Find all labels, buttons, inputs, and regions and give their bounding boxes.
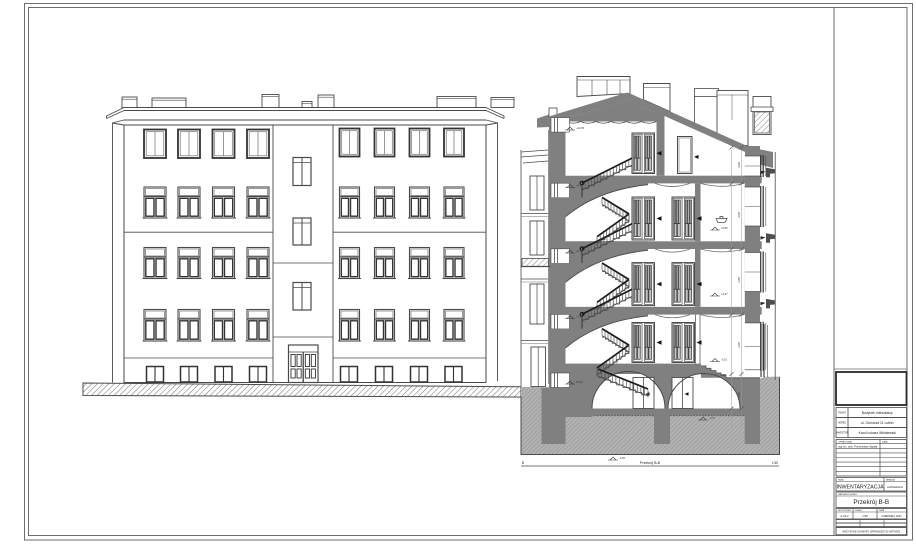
svg-text:3,08: 3,08: [737, 212, 741, 218]
svg-text:+9,42: +9,42: [576, 184, 583, 188]
svg-text:Przekrój B-B: Przekrój B-B: [853, 499, 889, 506]
svg-text:INWENTARYZACJA: INWENTARYZACJA: [836, 485, 884, 491]
svg-text:SKALA: SKALA: [855, 509, 862, 512]
svg-text:-3,05: -3,05: [619, 456, 625, 460]
svg-text:-0,15: -0,15: [721, 358, 727, 362]
svg-text:3,05: 3,05: [737, 342, 741, 348]
svg-text:FAZA: FAZA: [838, 479, 844, 482]
svg-text:A-03.2: A-03.2: [840, 514, 849, 518]
svg-text:NR RYSUNKU: NR RYSUNKU: [838, 510, 852, 512]
svg-text:CZERWIEC 2021: CZERWIEC 2021: [881, 514, 902, 518]
svg-text:2,50: 2,50: [737, 392, 741, 398]
svg-text:1:50: 1:50: [862, 514, 868, 518]
svg-text:TEMAT: TEMAT: [838, 412, 846, 415]
svg-text:3,08: 3,08: [737, 162, 741, 168]
svg-text:Karol Łukasz Wiśniewski: Karol Łukasz Wiśniewski: [859, 431, 897, 435]
svg-text:Przekrój B-B: Przekrój B-B: [640, 461, 661, 465]
svg-text:NAZWA RYSUNKU: NAZWA RYSUNKU: [838, 493, 857, 496]
svg-text:±0,00: ±0,00: [576, 380, 583, 384]
svg-text:BRANŻA: BRANŻA: [886, 479, 895, 482]
svg-text:+3,10: +3,10: [576, 315, 583, 319]
svg-text:OPRACOWAŁ: OPRACOWAŁ: [838, 441, 853, 444]
svg-text:3,08: 3,08: [737, 277, 741, 283]
svg-text:+12,05: +12,05: [576, 126, 585, 130]
svg-text:B: B: [522, 461, 524, 465]
svg-text:mgr inż. arch. Przemysław Sapa: mgr inż. arch. Przemysław Sapała: [838, 444, 878, 448]
svg-text:-2,47: -2,47: [709, 416, 715, 420]
svg-text:DATA: DATA: [879, 509, 885, 512]
svg-text:ul. Górnicza 11 Lublin: ul. Górnicza 11 Lublin: [861, 421, 894, 425]
svg-text:ADRES: ADRES: [838, 422, 847, 425]
svg-text:DATA: DATA: [882, 441, 888, 444]
svg-text:Budynek mieszkalny: Budynek mieszkalny: [862, 411, 893, 415]
svg-text:INWESTOR: INWESTOR: [836, 432, 849, 435]
svg-text:WSZYSTKIE WYMIARY SPRAWDZIĆ W: WSZYSTKIE WYMIARY SPRAWDZIĆ W NATURZE: [842, 531, 900, 534]
svg-text:+2,97: +2,97: [721, 292, 728, 296]
svg-text:+6,25: +6,25: [576, 249, 583, 253]
svg-text:1:50: 1:50: [772, 461, 778, 465]
svg-text:architektura: architektura: [887, 485, 903, 489]
svg-text:+5,85: +5,85: [721, 226, 728, 230]
